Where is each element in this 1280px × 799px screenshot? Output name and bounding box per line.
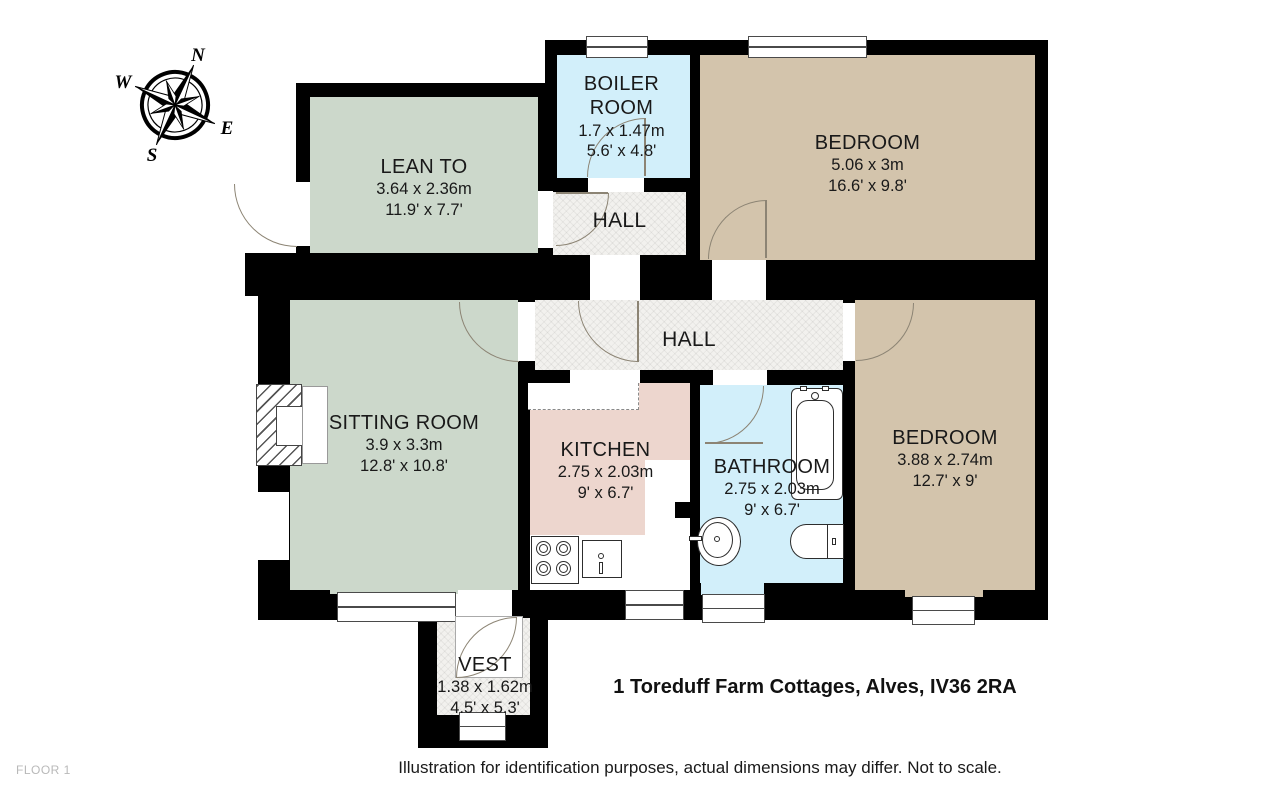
door-swing-icon	[234, 184, 297, 247]
room-dims-imperial: 12.7' x 9'	[850, 471, 1040, 491]
compass-north-label: N	[190, 45, 206, 66]
disclaimer: Illustration for identification purposes…	[390, 758, 1010, 778]
kitchen-recess	[528, 383, 639, 410]
window	[337, 592, 456, 622]
burner-icon	[556, 561, 571, 576]
room-dims-imperial: 16.6' x 9.8'	[700, 176, 1035, 196]
door-leaf	[765, 200, 767, 258]
property-address: 1 Toreduff Farm Cottages, Alves, IV36 2R…	[555, 676, 1075, 699]
room-dims-metric: 1.7 x 1.47m	[553, 121, 690, 141]
bath-tap	[811, 392, 819, 400]
sink-icon	[582, 540, 622, 578]
room-dims-imperial: 4.5' x 5.3'	[415, 698, 555, 718]
bath-tap	[822, 386, 829, 391]
room-label-vest: VEST 1.38 x 1.62m 4.5' x 5.3'	[415, 653, 555, 718]
room-label-kitchen: KITCHEN 2.75 x 2.03m 9' x 6.7'	[523, 438, 688, 503]
room-label-sitting-room: SITTING ROOM 3.9 x 3.3m 12.8' x 10.8'	[290, 411, 518, 476]
door-opening	[713, 370, 767, 386]
room-name: VEST	[415, 653, 555, 677]
room-dims-metric: 5.06 x 3m	[700, 155, 1035, 175]
room-label-bathroom: BATHROOM 2.75 x 2.03m 9' x 6.7'	[694, 455, 850, 520]
window	[702, 594, 765, 623]
room-label-hall-upper: HALL	[553, 208, 686, 234]
window	[912, 596, 975, 625]
door-leaf	[556, 192, 608, 194]
room-label-hall-main: HALL	[535, 327, 843, 353]
compass-east-label: E	[220, 118, 234, 139]
room-label-boiler-room: BOILER ROOM 1.7 x 1.47m 5.6' x 4.8'	[553, 72, 690, 161]
room-label-bedroom-top: BEDROOM 5.06 x 3m 16.6' x 9.8'	[700, 131, 1035, 196]
door-opening	[588, 176, 644, 192]
toilet-cistern	[827, 524, 844, 559]
room-dims-metric: 2.75 x 2.03m	[694, 479, 850, 499]
room-dims-imperial: 12.8' x 10.8'	[290, 456, 518, 476]
room-dims-metric: 2.75 x 2.03m	[523, 462, 688, 482]
door-opening	[590, 255, 640, 301]
basin-drain	[714, 536, 720, 542]
compass-west-label: W	[115, 72, 133, 93]
door-leaf	[705, 442, 763, 444]
room-name: BEDROOM	[700, 131, 1035, 155]
room-name: KITCHEN	[523, 438, 688, 462]
floorplan: N E S W LEAN TO 3.64 x 2.36m 11.9' x 7.7…	[0, 0, 1280, 799]
burner-icon	[556, 541, 571, 556]
flush-button	[832, 538, 836, 545]
floor-label: FLOOR 1	[16, 763, 71, 777]
toilet-icon	[790, 524, 832, 559]
door-opening	[538, 191, 553, 248]
compass-rose-icon: N E S W	[105, 35, 245, 175]
room-name: BATHROOM	[694, 455, 850, 479]
room-dims-metric: 1.38 x 1.62m	[415, 677, 555, 697]
basin-tap	[689, 536, 702, 541]
room-name: BEDROOM	[850, 426, 1040, 450]
room-dims-metric: 3.9 x 3.3m	[290, 435, 518, 455]
room-name: BOILER ROOM	[553, 72, 690, 121]
room-name: HALL	[553, 208, 686, 234]
burner-icon	[536, 561, 551, 576]
sink-tap	[599, 562, 603, 574]
compass-south-label: S	[147, 145, 158, 166]
door-opening	[843, 303, 855, 361]
stove-icon	[531, 536, 579, 584]
burner-icon	[536, 541, 551, 556]
window	[748, 36, 867, 58]
basin-icon	[697, 517, 741, 566]
room-dims-metric: 3.88 x 2.74m	[850, 450, 1040, 470]
door-opening	[712, 257, 766, 301]
room-label-bedroom-right: BEDROOM 3.88 x 2.74m 12.7' x 9'	[850, 426, 1040, 491]
door-opening	[570, 370, 640, 384]
room-dims-imperial: 11.9' x 7.7'	[310, 200, 538, 220]
room-dims-imperial: 9' x 6.7'	[694, 500, 850, 520]
room-dims-imperial: 5.6' x 4.8'	[553, 141, 690, 161]
room-dims-imperial: 9' x 6.7'	[523, 483, 688, 503]
door-opening	[518, 302, 535, 361]
bath-tap	[800, 386, 807, 391]
room-name: SITTING ROOM	[290, 411, 518, 435]
room-dims-metric: 3.64 x 2.36m	[310, 179, 538, 199]
room-label-lean-to: LEAN TO 3.64 x 2.36m 11.9' x 7.7'	[310, 155, 538, 220]
window	[258, 492, 289, 560]
room-name: HALL	[535, 327, 843, 353]
window	[586, 36, 648, 58]
window	[625, 590, 684, 620]
room-name: LEAN TO	[310, 155, 538, 179]
sink-drain	[598, 553, 604, 559]
